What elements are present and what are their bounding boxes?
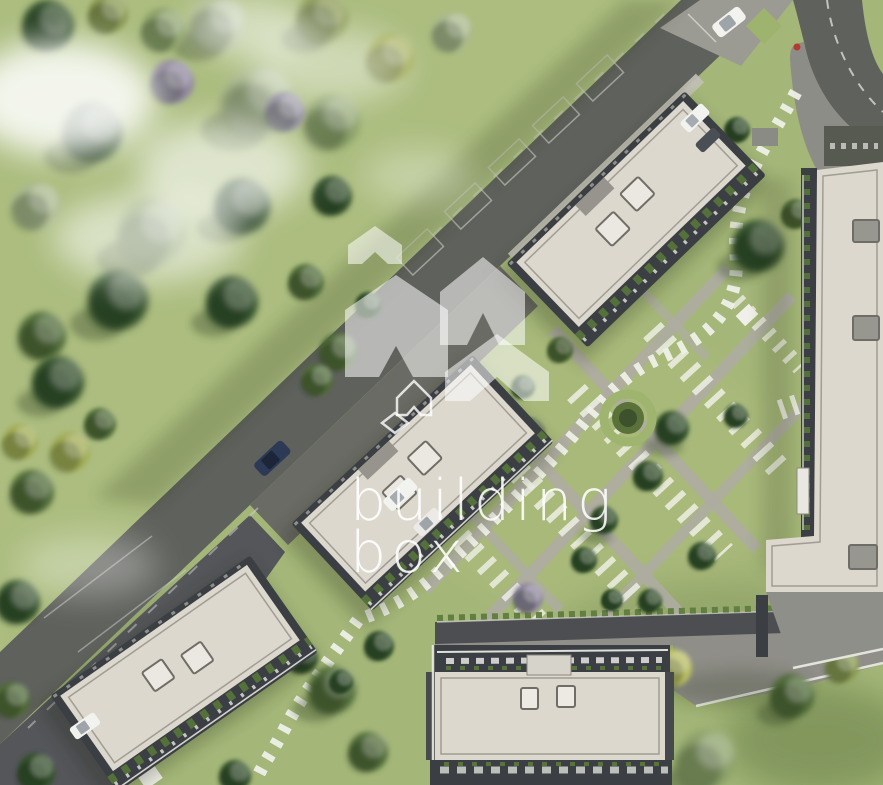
building-bottom-center-block — [426, 645, 674, 785]
protruding-balcony — [797, 468, 809, 514]
skylight — [557, 686, 575, 707]
site-plan-svg: building box — [0, 0, 883, 785]
watermark-line-2: box — [350, 520, 468, 586]
building-right-block — [752, 126, 883, 668]
skylight — [521, 688, 538, 709]
pedestrian — [794, 44, 801, 51]
aerial-site-render: building box — [0, 0, 883, 785]
stairwell-bump — [527, 655, 571, 675]
